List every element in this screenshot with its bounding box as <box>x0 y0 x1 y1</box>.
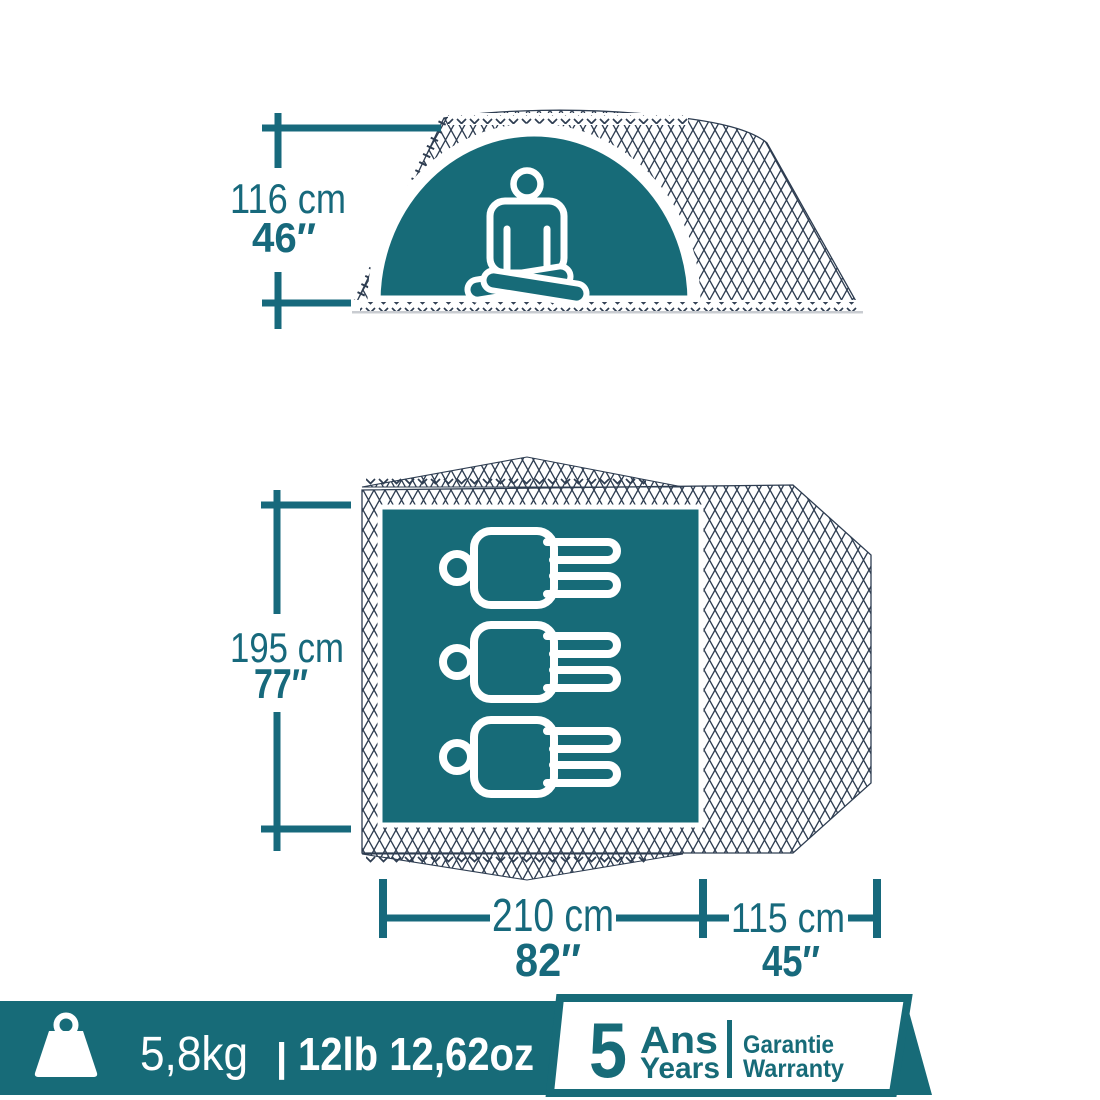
tent-top-view <box>362 457 871 880</box>
warranty-badge: 5 Ans Years Garantie Warranty <box>550 998 908 1094</box>
tent-spec-infographic: 116 cm 46″ 195 cm 77″ 210 cm 82″ 115 cm … <box>0 0 1100 1100</box>
spec-banner: 5,8kg | 12lb 12,62oz 5 Ans Years Garanti… <box>0 998 932 1095</box>
ground-line <box>352 311 863 314</box>
bottom-flap-chevrons <box>366 856 646 865</box>
porch-metric-label: 115 cm <box>731 894 845 941</box>
tent-ground-chevrons <box>360 302 858 311</box>
tent-top-seam-chevrons <box>448 115 688 124</box>
length-imperial-label: 82″ <box>515 934 581 986</box>
sleeping-area <box>380 507 701 825</box>
height-imperial-label: 46″ <box>252 214 316 261</box>
top-flap-chevrons <box>366 478 646 487</box>
porch-imperial-label: 45″ <box>762 937 820 986</box>
warranty-number: 5 <box>589 1006 627 1094</box>
warranty-divider <box>727 1020 732 1078</box>
weight-metric-label: 5,8kg <box>140 1028 248 1081</box>
infographic-canvas: 116 cm 46″ 195 cm 77″ 210 cm 82″ 115 cm … <box>0 0 1100 1100</box>
tent-side-view <box>348 110 866 313</box>
depth-imperial-label: 77″ <box>254 660 308 707</box>
weight-separator: | <box>276 1036 287 1080</box>
warranty-label-en: Warranty <box>743 1055 844 1083</box>
warranty-unit-en: Years <box>640 1052 720 1085</box>
weight-imperial-label: 12lb 12,62oz <box>298 1028 534 1080</box>
